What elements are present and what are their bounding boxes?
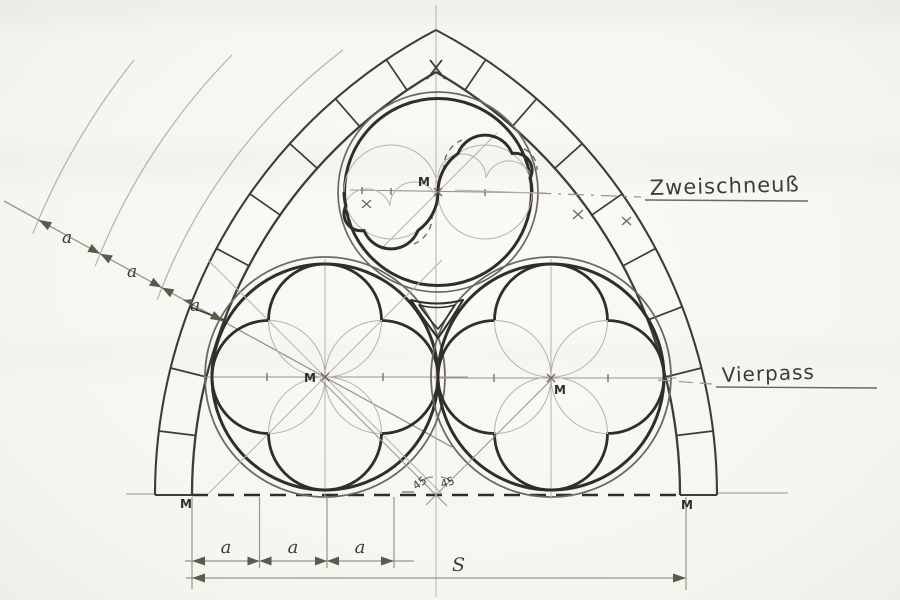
tracery-construction-sheet: Zweischneuß Vierpass a a a a a a S M M M… (0, 0, 900, 600)
bottom-a-label-1: a (221, 537, 232, 558)
diagonal-a-label-3: a (190, 296, 200, 316)
center-m-top: M (418, 175, 430, 189)
tracery-drawing: Zweischneuß Vierpass a a a a a a S M M M… (0, 0, 900, 600)
left-circle-vierpass (203, 257, 468, 499)
center-m-baseline-right: M (681, 498, 693, 512)
baseline (126, 493, 788, 495)
span-s-label: S (452, 554, 465, 576)
bottom-a-label-2: a (288, 537, 299, 558)
bottom-a-label-3: a (355, 537, 366, 558)
center-m-left: M (304, 371, 316, 385)
dimension-extension-lines (192, 497, 686, 590)
zweischneuss-label: Zweischneuß (650, 172, 800, 200)
construction-arcs (33, 50, 343, 300)
center-m-right: M (554, 383, 566, 397)
center-m-baseline-left: M (180, 497, 192, 511)
vierpass-label: Vierpass (721, 360, 815, 387)
diagonal-a-label-1: a (62, 228, 72, 248)
diagonal-a-label-2: a (127, 262, 137, 282)
angle-45-left-label: 45 (410, 474, 429, 493)
